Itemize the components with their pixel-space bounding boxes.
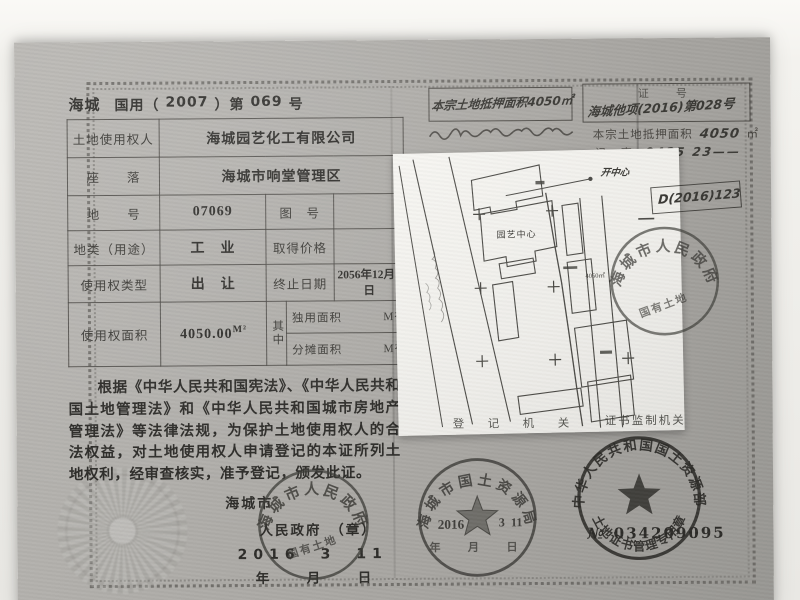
handwritten-mortgage-note: 本宗土地抵押面积4050㎡	[431, 91, 574, 114]
site-plan-drawing: 园艺中心 4050㎡	[393, 148, 685, 436]
exclusive-area-cell: 独用面积M²	[286, 300, 404, 333]
legal-statement: 根据《中华人民共和国宪法》、《中华人民共和国土地管理法》和《中华人民共和国城市房…	[68, 376, 401, 487]
area-value: 4050.00M²	[160, 301, 266, 366]
serial-digits: 034209095	[614, 524, 726, 543]
form-text: 号	[289, 94, 304, 114]
handwritten-scrawl	[427, 123, 585, 151]
table-row: 使用权类型 出 让 终止日期 2056年12月2日	[68, 263, 404, 302]
location-value: 海城市响堂管理区	[159, 155, 403, 195]
handwritten-note-small: 开中心	[600, 164, 630, 178]
table-row: 地 号 07069 图 号	[68, 193, 404, 230]
field-label: 座 落	[67, 157, 159, 196]
handwritten-mortgage-area: 4050	[699, 127, 741, 142]
field-label: 地 号	[68, 195, 160, 231]
issuer-government: 人民政府 （章）	[259, 518, 387, 539]
other-right-cert-box: 证 号 海城他项(2016)第028号	[582, 83, 750, 123]
expiry-date-value: 2056年12月2日	[334, 263, 404, 300]
area-unit: M²	[233, 324, 248, 335]
handwritten-reference: D(2016)123	[658, 185, 741, 206]
field-label: 图 号	[266, 194, 334, 229]
issuer-city: 海城市	[225, 492, 387, 513]
field-label: 终止日期	[266, 264, 334, 301]
form-text: 国用（	[114, 95, 159, 115]
area-number: 4050.00	[180, 327, 233, 342]
certificate-photo: 海城 国用（ 2007 ）第 069 号 土地使用权人 海城园艺化工有限公司 座…	[0, 0, 800, 600]
field-label: 独用面积	[292, 309, 342, 325]
field-label: 使用权面积	[68, 302, 160, 367]
table-row: 使用权面积 4050.00M² 其中 独用面积M²	[68, 300, 404, 334]
certificate-left-page: 海城 国用（ 2007 ）第 069 号 土地使用权人 海城园艺化工有限公司 座…	[66, 92, 405, 487]
mortgage-area-row: 本宗土地抵押面积 4050 ㎡	[593, 125, 760, 142]
numero-sign: №	[587, 525, 605, 543]
field-label: 土地使用权人	[67, 119, 159, 158]
certificate-serial: 069	[250, 94, 282, 110]
certificate-serial-number: №034209095	[587, 524, 725, 543]
shared-area-cell: 分摊面积M²	[287, 332, 405, 365]
right-type-value: 出 让	[160, 264, 266, 302]
mortgage-area-unit: ㎡	[747, 128, 760, 140]
table-row: 土地使用权人 海城园艺化工有限公司	[67, 117, 403, 157]
supervisor-authority-label: 证书监制机关	[605, 412, 686, 429]
field-label: 使用权类型	[68, 265, 160, 303]
region-name: 海城	[68, 94, 100, 115]
mortgage-note-box: 本宗土地抵押面积4050㎡	[428, 87, 572, 122]
registry-authority-label: 登 记 机 关	[453, 415, 576, 432]
land-user-value: 海城园艺化工有限公司	[159, 117, 403, 157]
mortgage-area-label: 本宗土地抵押面积	[593, 129, 693, 142]
issue-date-stamp: 2016 3 11	[238, 543, 388, 564]
among-which-label: 其中	[266, 301, 286, 365]
field-label: 分摊面积	[292, 341, 342, 357]
certificate-year: 2007	[165, 94, 208, 110]
map-label-garden-center: 园艺中心	[496, 228, 536, 240]
date-template: 年 月 日	[256, 566, 388, 587]
certificate-number-line: 海城 国用（ 2007 ）第 069 号	[68, 92, 402, 115]
field-label: 取得价格	[266, 229, 334, 264]
issuer-block: 海城市 人民政府 （章） 2016 3 11 年 月 日	[225, 492, 388, 587]
parcel-number-value: 07069	[160, 194, 266, 230]
cadastral-map-overlay: 园艺中心 4050㎡	[393, 148, 685, 436]
form-text: ）第	[214, 94, 244, 114]
table-row: 座 落 海城市响堂管理区	[67, 155, 403, 195]
table-row: 地类（用途） 工 业 取得价格	[68, 228, 404, 265]
field-label: 地类（用途）	[68, 230, 160, 266]
map-label-area: 4050㎡	[585, 271, 605, 280]
land-info-table: 土地使用权人 海城园艺化工有限公司 座 落 海城市响堂管理区 地 号 07069…	[67, 117, 406, 367]
land-use-value: 工 业	[160, 229, 266, 265]
certificate-sheet: 海城 国用（ 2007 ）第 069 号 土地使用权人 海城园艺化工有限公司 座…	[14, 37, 774, 600]
